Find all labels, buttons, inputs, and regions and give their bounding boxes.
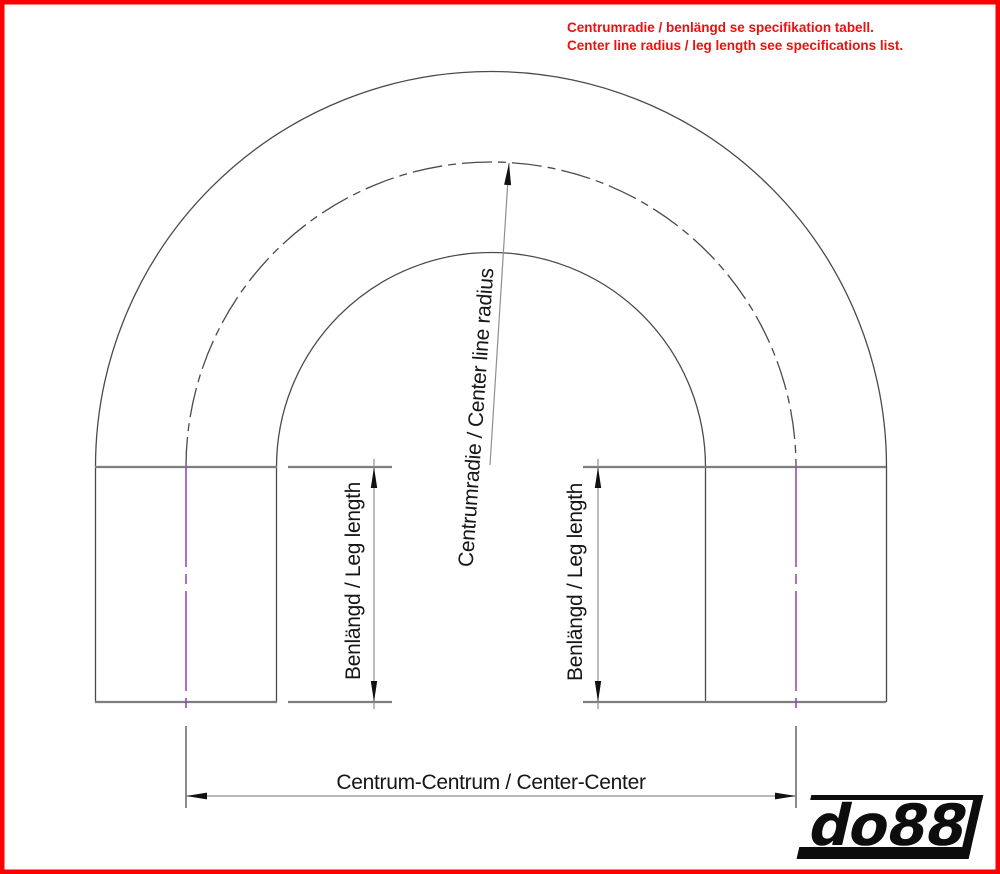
right-leg-dim-arrow-up (595, 467, 601, 488)
page-frame-border (2, 2, 998, 872)
do88-logo: do88 (797, 792, 985, 859)
left-leg-dim-arrow-up (371, 467, 377, 488)
right-leg-length-label: Benlängd / Leg length (564, 483, 587, 681)
center-radius-label: Centrumradie / Center line radius (455, 267, 499, 567)
note-line-1: Centrumradie / benlängd se specifikation… (567, 20, 874, 35)
left-leg-length-label: Benlängd / Leg length (342, 482, 365, 680)
right-leg-dim-arrow-down (595, 681, 601, 702)
note-line-2: Center line radius / leg length see spec… (567, 38, 903, 53)
drawing-canvas: Centrumradie / benlängd se specifikation… (0, 0, 1000, 874)
left-leg-dim-arrow-down (371, 681, 377, 702)
center-center-arrow-right (775, 793, 796, 800)
center-center-label: Centrum-Centrum / Center-Center (336, 771, 646, 794)
logo-text: do88 (803, 792, 974, 859)
radius-arrow (504, 163, 511, 185)
center-center-arrow-left (186, 793, 207, 800)
bend-diagram: Centrumradie / benlängd se specifikation… (0, 0, 1000, 874)
